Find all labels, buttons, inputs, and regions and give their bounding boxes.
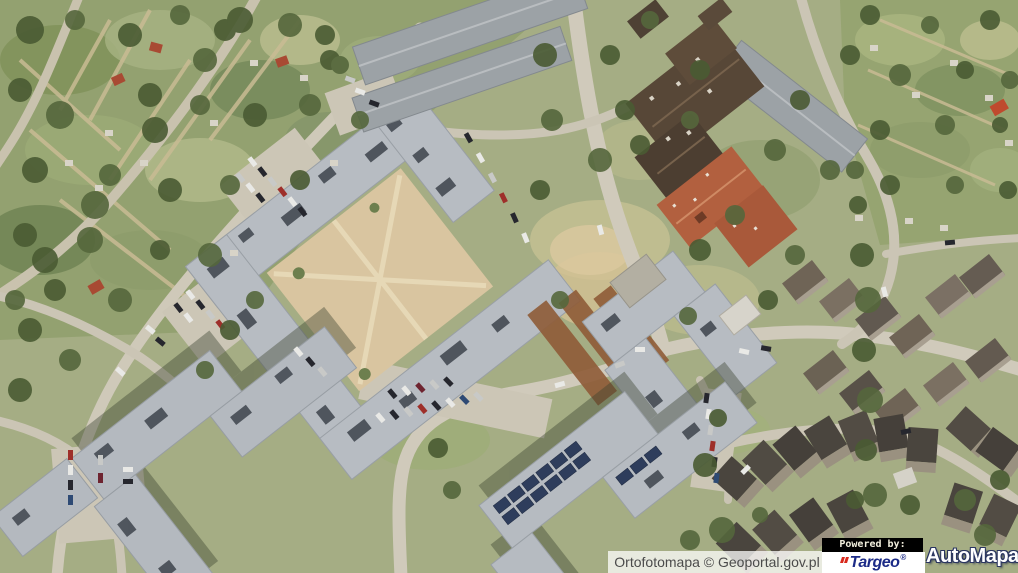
map-viewport: Ortofotomapa © Geoportal.gov.pl Powered … bbox=[0, 0, 1018, 573]
map-source-attribution: Ortofotomapa © Geoportal.gov.pl bbox=[608, 551, 826, 573]
automapa-wordmark: AutoMapa bbox=[926, 545, 1018, 567]
powered-by-label: Powered by: bbox=[822, 538, 923, 552]
targeo-registered-mark: ® bbox=[900, 553, 906, 562]
automapa-logo[interactable]: AutoMapa® bbox=[926, 545, 1018, 568]
targeo-wordmark: Targeo bbox=[850, 554, 900, 572]
targeo-red-mark-icon bbox=[841, 557, 848, 563]
map-canvas[interactable] bbox=[0, 0, 1018, 573]
targeo-logo[interactable]: Targeo ® bbox=[822, 552, 925, 573]
attribution-text: Ortofotomapa © Geoportal.gov.pl bbox=[614, 554, 819, 570]
